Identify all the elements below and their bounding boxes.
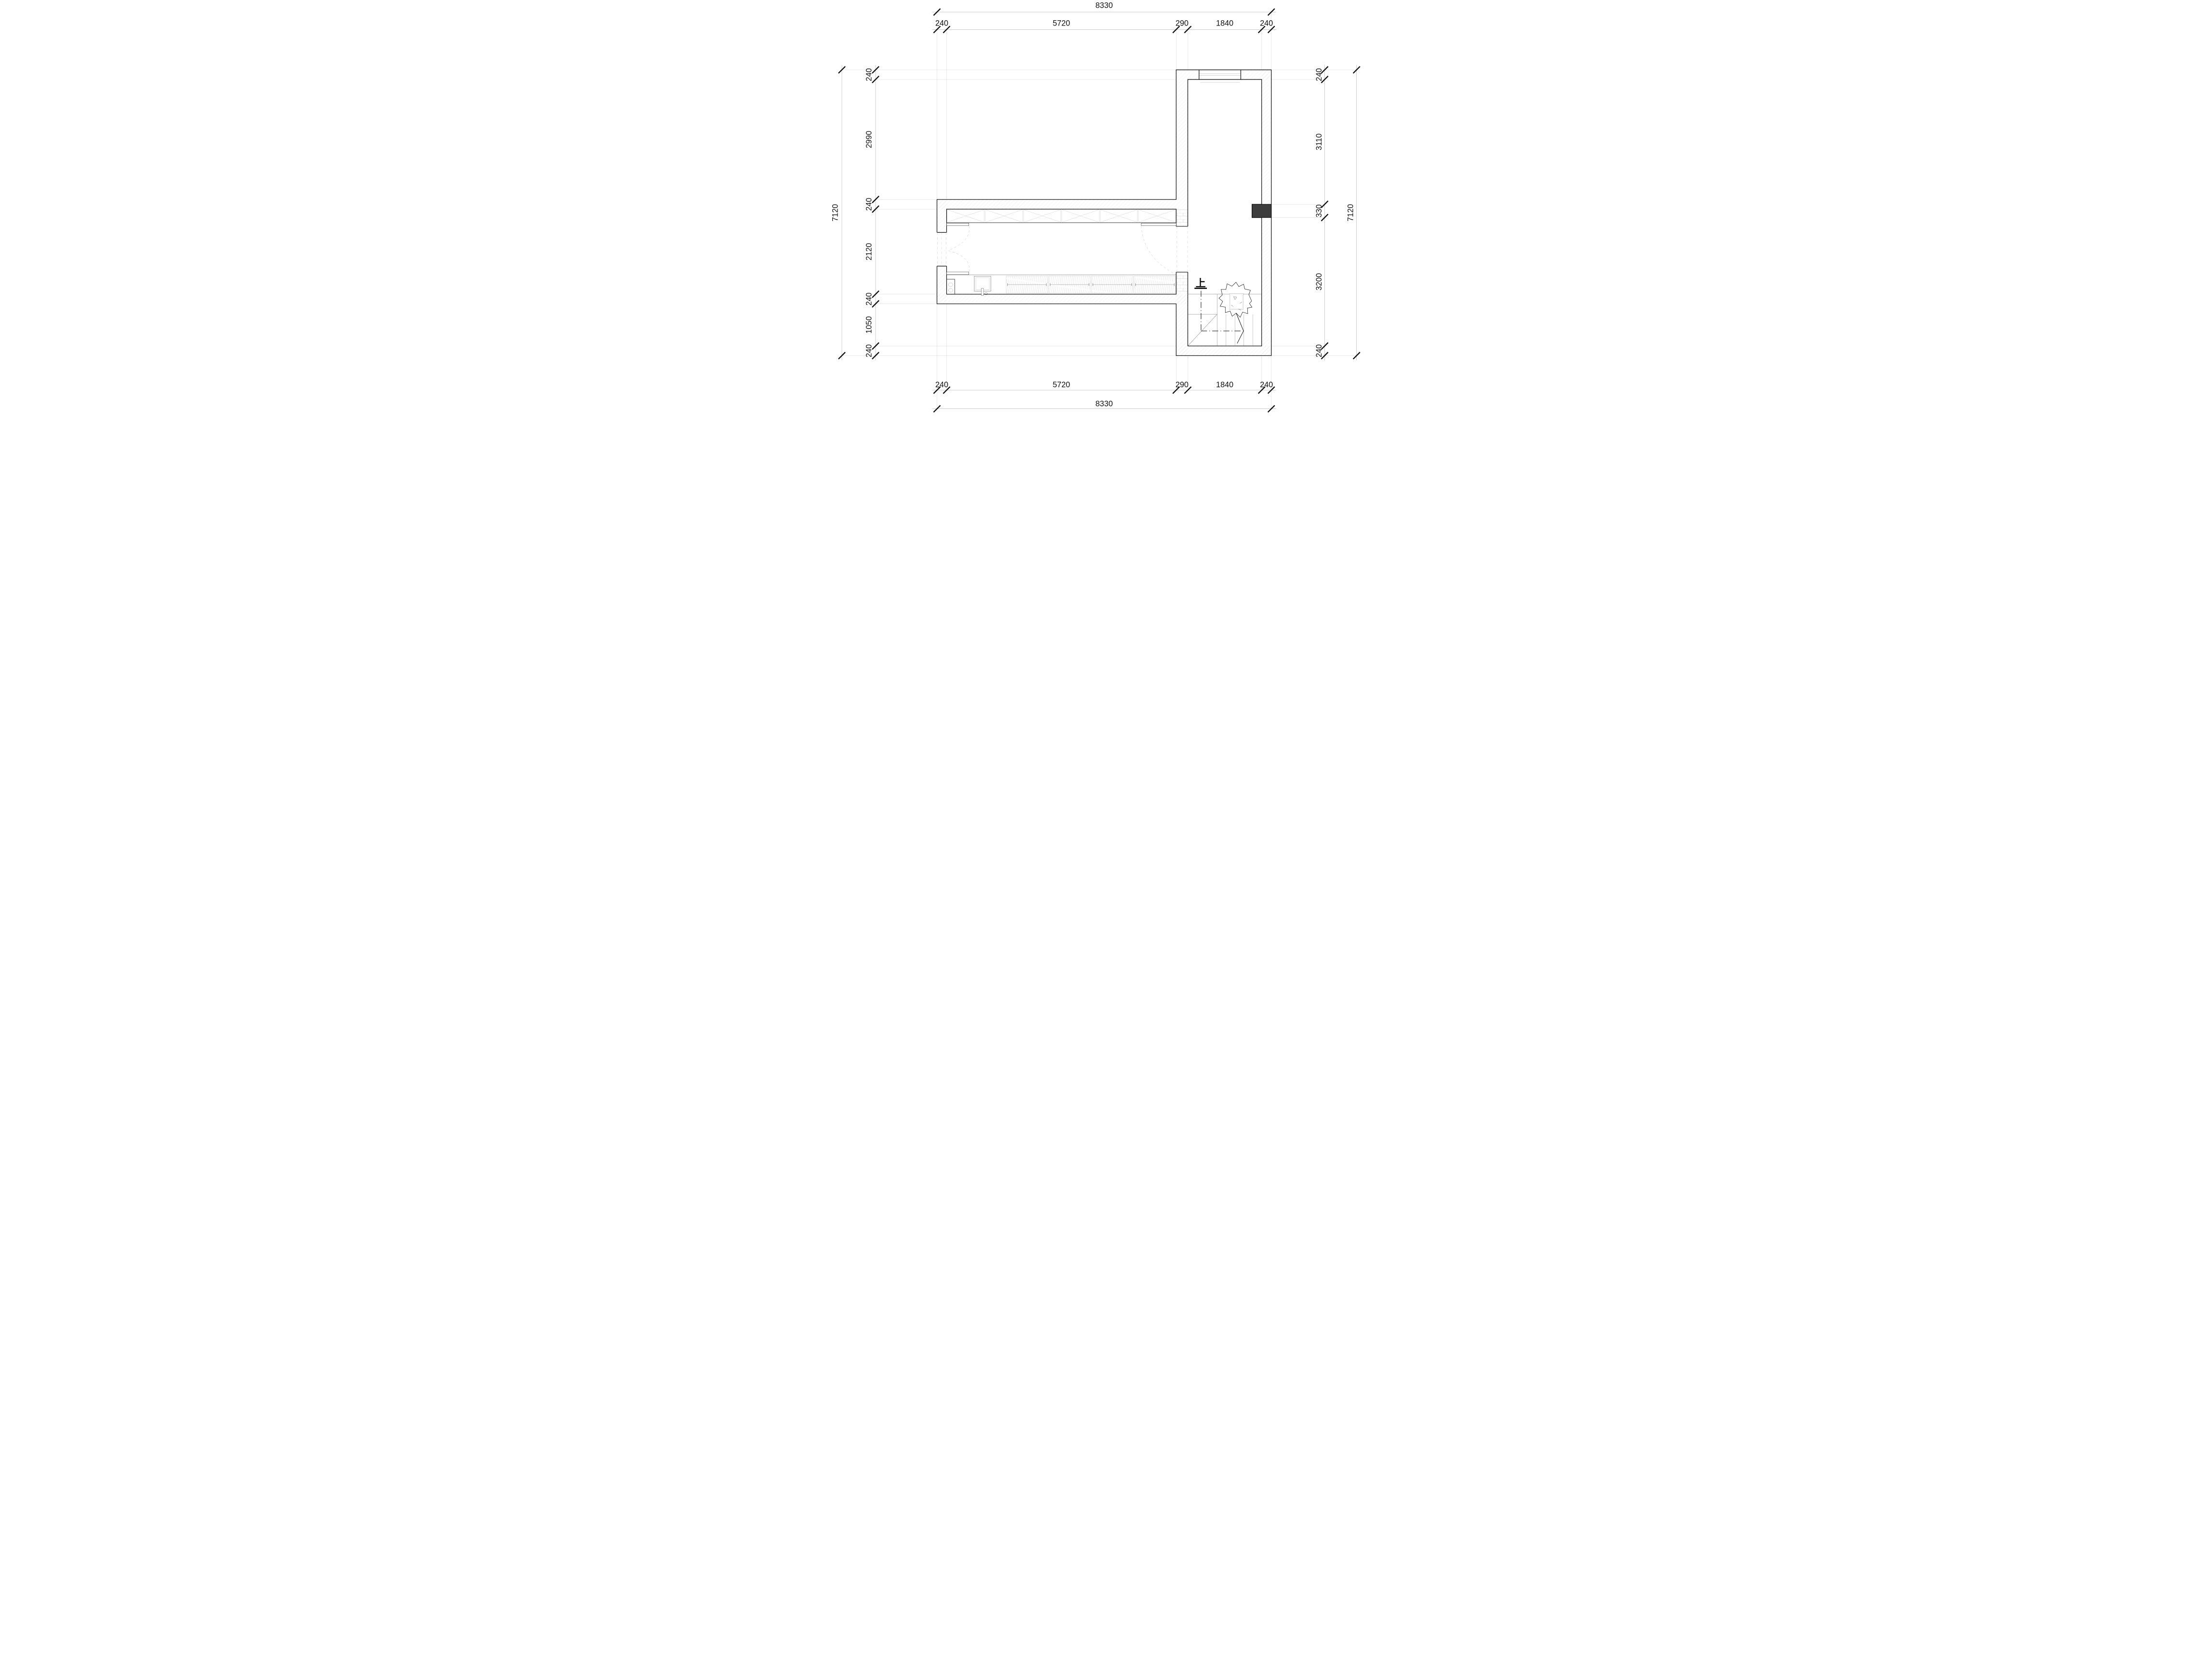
- dim-top-seg: 290: [1176, 19, 1189, 27]
- dim-right-seg: 330: [1315, 204, 1323, 217]
- dim-top-seg: 5720: [1053, 19, 1070, 27]
- dim-bottom-seg: 290: [1176, 381, 1189, 389]
- window: [1199, 70, 1241, 82]
- dim-left-seg: 2990: [865, 131, 874, 148]
- dim-top-seg: 1840: [1216, 19, 1233, 27]
- dim-left-seg: 1050: [865, 316, 874, 334]
- door-leaf: [1141, 223, 1177, 225]
- dim-left-seg: 240: [865, 292, 874, 305]
- dim-right-seg: 240: [1315, 344, 1323, 357]
- dim-left-seg: 240: [865, 344, 874, 357]
- dim-top-seg: 240: [1260, 19, 1273, 27]
- drawing-sheet: 上 8330 240 5720 290 1840 240 240 5720 29…: [825, 0, 1375, 420]
- dim-left-seg: 240: [865, 198, 874, 211]
- faucet-icon: [982, 288, 983, 295]
- door-leaf: [947, 223, 969, 225]
- dim-left-seg: 240: [865, 68, 874, 81]
- exterior-walls: [937, 70, 1271, 355]
- dim-bottom-seg: 240: [935, 381, 948, 389]
- dim-bottom-seg: 5720: [1053, 381, 1070, 389]
- dim-left-total: 7120: [831, 204, 840, 222]
- dim-bottom-seg: 240: [1260, 381, 1273, 389]
- wardrobe-band: [947, 210, 1177, 223]
- structural-column: [1252, 204, 1271, 218]
- stair-up-label: 上: [1196, 278, 1206, 289]
- dim-top-seg: 240: [935, 19, 948, 27]
- staircase: 上: [1188, 278, 1261, 346]
- masonry-pier-top: [1176, 209, 1188, 226]
- corridor-door: [1141, 223, 1188, 274]
- wall-outlines: [937, 70, 1271, 355]
- closet-band: [1006, 276, 1176, 293]
- stair-treads: [1226, 315, 1253, 346]
- dim-left-seg: 2120: [865, 243, 874, 260]
- dim-bottom-seg: 1840: [1216, 381, 1233, 389]
- break-line: [1188, 315, 1217, 346]
- planter: [1230, 293, 1243, 309]
- dim-right-seg: 240: [1315, 68, 1323, 81]
- dim-right-seg: 3110: [1315, 133, 1323, 150]
- dim-right-seg: 3200: [1315, 273, 1323, 290]
- dim-bottom-total: 8330: [1096, 399, 1113, 408]
- sink: [974, 276, 991, 295]
- masonry-pier-bottom: [1176, 272, 1188, 294]
- dim-right-total: 7120: [1347, 204, 1355, 222]
- floor-plan-canvas: 上 8330 240 5720 290 1840 240 240 5720 29…: [825, 0, 1375, 420]
- stove: [947, 279, 955, 294]
- door-leaf: [947, 272, 969, 275]
- dim-top-total: 8330: [1096, 1, 1113, 10]
